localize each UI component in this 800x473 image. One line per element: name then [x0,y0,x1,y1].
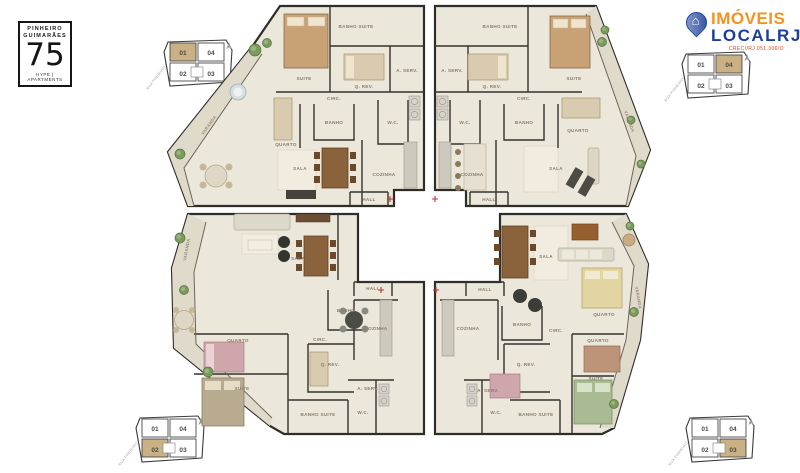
room-label-hall: HALL [482,197,495,202]
keyplan-core [163,443,175,453]
room-label-sala: SALA [539,254,553,259]
room-label-circ-: CIRC. [549,328,563,333]
room-label-banho: BANHO [515,120,533,125]
keyplan-unit-number: 01 [697,62,705,69]
room-label-banho: BANHO [513,322,531,327]
room-label-a-serv-: A. SERV. [477,388,499,393]
room-label-banho-suite: BANHO SUITE [519,412,554,417]
agency-text: IMÓVEIS LOCALRJ CRECI/RJ 051.306/O [711,10,800,52]
room-label-q-rev-: Q. REV. [483,84,502,89]
room-label-sala: SALA [549,166,563,171]
room-label-suite: SUITE [566,76,581,81]
room-label-cozinha: COZINHA [364,326,387,331]
room-label-banho-suite: BANHO SUITE [483,24,518,29]
room-label-a-serv-: A. SERV. [441,68,463,73]
room-label-quarto: QUARTO [587,338,609,343]
keyplan-unit-number: 03 [729,447,737,454]
room-label-sala: SALA [291,256,305,261]
center-markers [378,196,439,293]
project-number: 75 [25,41,64,70]
room-label-suite: SUITE [296,76,311,81]
keyplan-unit-number: 04 [729,426,737,433]
room-label-quarto: QUARTO [567,128,589,133]
keyplan-top-right: RUA PINHEIRO GUIMARÃES 01 04 02 03 [654,50,754,106]
room-label-suite: SUITE [588,376,603,381]
room-label-hall: HALL [478,287,491,292]
survey-cross-icon [432,196,438,202]
room-label-hall: HALL [366,286,379,291]
apartment-unit-01: SUITEBANHO SUITEQ. REV.A. SERV.CIRC.QUAR… [168,6,424,206]
room-label-q-rev-: Q. REV. [321,362,340,367]
keyplan-unit-number: 02 [151,447,159,454]
keyplan-core [713,443,725,453]
project-subtitle: HYPE | APARTMENTS [20,72,70,82]
room-label-a-serv-: A. SERV. [396,68,418,73]
apartment-unit-04: SUITEBANHO SUITEQ. REV.A. SERV.CIRC.QUAR… [435,6,650,206]
agency-logo: ⌂ IMÓVEIS LOCALRJ CRECI/RJ 051.306/O [684,10,800,52]
house-icon: ⌂ [686,11,705,30]
house-pin-icon: ⌂ [684,10,708,44]
room-label-quarto: QUARTO [227,338,249,343]
room-label-banho: BANHO [337,308,355,313]
room-label-hall: HALL [362,197,375,202]
room-label-quarto: QUARTO [593,312,615,317]
keyplan-unit-number: 01 [701,426,709,433]
agency-name-line1: IMÓVEIS [711,10,800,27]
room-label-w-c-: W.C. [387,120,398,125]
floorplan: SUITEBANHO SUITEQ. REV.A. SERV.CIRC.QUAR… [158,0,658,440]
room-label-w-c-: W.C. [357,410,368,415]
room-label-banho-suite: BANHO SUITE [339,24,374,29]
room-label-circ-: CIRC. [313,337,327,342]
room-label-quarto: QUARTO [275,142,297,147]
keyplan-unit-number: 03 [179,447,187,454]
keyplan-bottom-right: RUA PINHEIRO GUIMARÃES 01 04 02 03 [658,414,758,470]
room-label-circ-: CIRC. [327,96,341,101]
keyplan-core [709,79,721,89]
room-label-q-rev-: Q. REV. [517,362,536,367]
room-label-banho-suite: BANHO SUITE [301,412,336,417]
room-label-cozinha: COZINHA [460,172,483,177]
room-label-q-rev-: Q. REV. [355,84,374,89]
keyplan-unit-number: 04 [725,62,733,69]
room-label-sala: SALA [293,166,307,171]
room-label-cozinha: COZINHA [456,326,479,331]
room-label-w-c-: W.C. [459,120,470,125]
project-name-line1: PINHEIRO [27,26,62,33]
keyplan-unit-number: 03 [725,83,733,90]
keyplan-unit-number: 02 [701,447,709,454]
project-logo: PINHEIRO GUIMARÃES 75 HYPE | APARTMENTS [18,21,72,87]
room-label-circ-: CIRC. [517,96,531,101]
page: PINHEIRO GUIMARÃES 75 HYPE | APARTMENTS … [0,0,800,473]
room-label-w-c-: W.C. [490,410,501,415]
apartment-unit-03: SALAVARANDAQUARTOQUARTOSUITEQ. REV.CIRC.… [435,214,648,434]
keyplan-unit-number: 02 [697,83,705,90]
room-label-a-serv-: A. SERV. [357,386,379,391]
room-label-suite: SUITE [234,386,249,391]
room-label-banho: BANHO [325,120,343,125]
apartment-unit-02: SALAVARANDAQUARTOSUITEQ. REV.CIRC.BANHOC… [172,214,424,434]
room-label-cozinha: COZINHA [372,172,395,177]
agency-name-line2: LOCALRJ [711,27,800,45]
